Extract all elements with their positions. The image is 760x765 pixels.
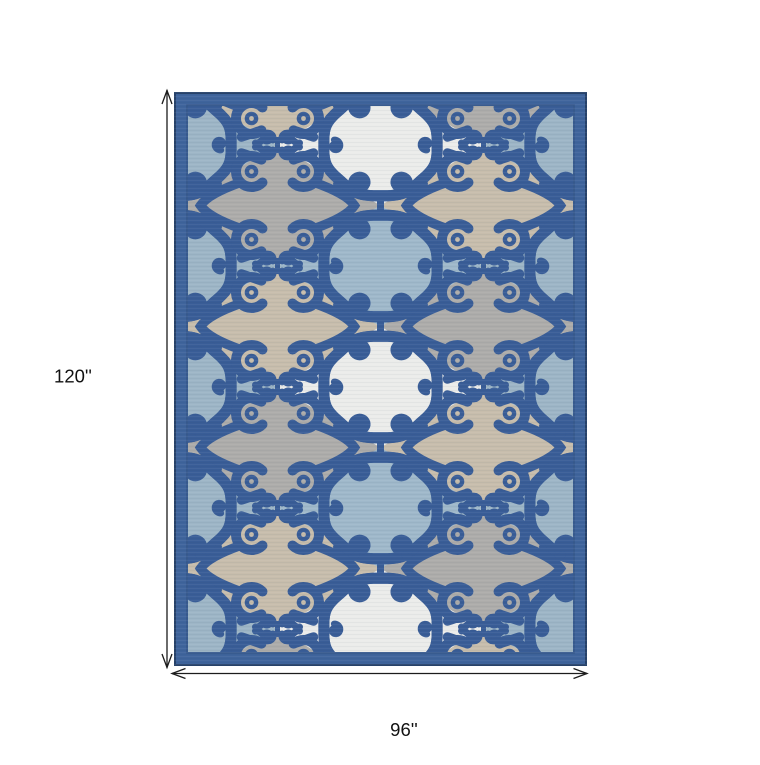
svg-text:96'': 96'' <box>390 719 418 740</box>
svg-text:120'': 120'' <box>54 366 92 387</box>
